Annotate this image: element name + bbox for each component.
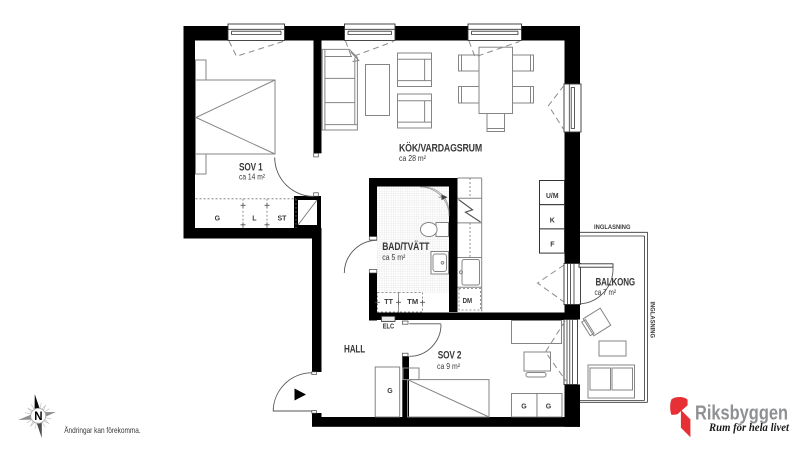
svg-text:SOV 2: SOV 2 xyxy=(438,350,462,362)
svg-text:ca 5 m²: ca 5 m² xyxy=(382,253,405,262)
svg-text:K: K xyxy=(550,218,555,225)
svg-text:Ändringar kan förekomma.: Ändringar kan förekomma. xyxy=(64,425,141,435)
svg-text:G: G xyxy=(546,403,552,410)
svg-text:ELC: ELC xyxy=(383,324,395,331)
svg-text:G: G xyxy=(387,388,393,395)
svg-text:N: N xyxy=(34,411,42,423)
svg-text:ST: ST xyxy=(278,215,288,222)
svg-text:F: F xyxy=(550,241,555,248)
svg-text:ca 28 m²: ca 28 m² xyxy=(399,154,426,163)
svg-text:ca 14 m²: ca 14 m² xyxy=(239,173,265,182)
svg-text:ca 9 m²: ca 9 m² xyxy=(437,362,460,371)
svg-text:G: G xyxy=(215,215,221,222)
svg-text:BALKONG: BALKONG xyxy=(596,277,636,289)
svg-text:L: L xyxy=(252,215,257,222)
svg-text:HALL: HALL xyxy=(344,344,365,356)
svg-text:G: G xyxy=(521,403,527,410)
svg-text:ca 7 m²: ca 7 m² xyxy=(595,288,617,297)
svg-text:KÖK/VARDAGSRUM: KÖK/VARDAGSRUM xyxy=(399,142,482,155)
svg-text:BAD/TVÄTT: BAD/TVÄTT xyxy=(382,240,429,253)
svg-text:INGLASNING: INGLASNING xyxy=(594,224,631,231)
svg-text:TM: TM xyxy=(407,299,418,306)
svg-text:TT: TT xyxy=(384,299,393,306)
svg-text:Rum för hela livet: Rum för hela livet xyxy=(708,422,790,434)
svg-text:INGLASNING: INGLASNING xyxy=(648,302,655,339)
svg-text:DM: DM xyxy=(463,298,473,305)
svg-text:U/M: U/M xyxy=(546,193,559,200)
